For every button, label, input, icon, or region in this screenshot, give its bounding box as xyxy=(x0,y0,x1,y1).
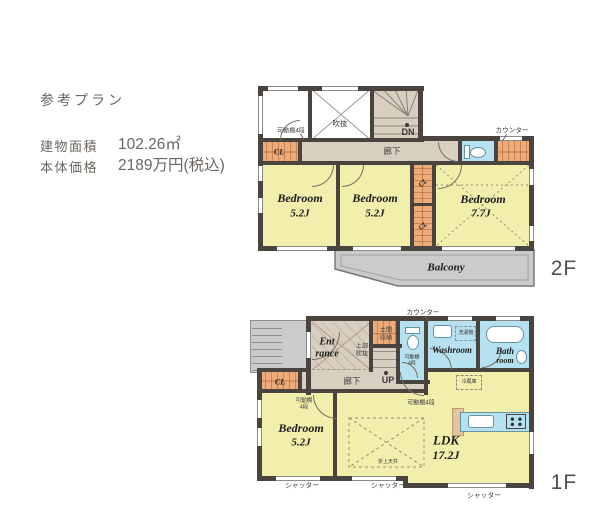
front-door-opening xyxy=(306,332,311,358)
floor1-label: 1F xyxy=(551,471,578,495)
bath-line2: room xyxy=(496,357,514,366)
floorplan-page: 参考プラン 建物面積 102.26㎡ 本体価格 2189万円(税込) xyxy=(0,0,600,516)
bath-line1: Bath xyxy=(496,346,514,356)
bedroom-shelf-line1: 可動棚 xyxy=(296,398,313,404)
window xyxy=(257,428,262,446)
wall xyxy=(257,368,262,481)
upper-void-line1: 上部 xyxy=(356,343,368,350)
porch-steps xyxy=(252,322,282,371)
bedroom-size: 5.2J xyxy=(291,437,310,450)
stairs-up-label: UP xyxy=(382,375,395,385)
fridge-label: 冷蔵庫 xyxy=(462,379,477,385)
window xyxy=(257,400,262,418)
closet-label: CL xyxy=(275,377,285,386)
shutter-label-2: シャッター xyxy=(371,482,405,490)
washbasin-icon xyxy=(433,325,452,338)
bathtub-icon xyxy=(486,326,524,343)
kitchen-sink-icon xyxy=(468,415,494,428)
bedroom-name: Bedroom xyxy=(278,422,323,436)
hallway-label: 廊下 xyxy=(343,377,360,387)
toilet-tank-icon xyxy=(405,327,420,334)
entrance-label-line2: rance xyxy=(315,348,338,360)
toilet-bowl-icon xyxy=(407,335,419,350)
wall xyxy=(298,368,302,393)
ceiling-note-label: 折上天井 xyxy=(378,459,398,465)
counter-note-label: カウンター xyxy=(406,309,439,317)
bath-stool-icon xyxy=(516,350,527,364)
bathroom-label: Bath room xyxy=(496,346,514,366)
wall xyxy=(529,316,534,489)
toilet-shelf-line2: 4段 xyxy=(405,360,420,366)
toilet-shelf-line1: 可動棚 xyxy=(405,354,420,360)
wall xyxy=(424,316,428,395)
upper-void-line2: 吹抜 xyxy=(356,350,368,357)
window xyxy=(448,316,472,321)
washroom-label: Washroom xyxy=(432,345,472,355)
wall xyxy=(257,368,310,372)
washer-label: 洗濯機 xyxy=(459,330,474,336)
window xyxy=(276,476,320,481)
window xyxy=(448,483,506,488)
wall xyxy=(257,389,428,393)
doma-line2: 収納 xyxy=(380,334,392,341)
ldk-shelf-label: 可動棚4段 xyxy=(407,400,435,407)
shutter-label-1: シャッター xyxy=(285,482,319,490)
toilet-shelf-label: 可動棚 4段 xyxy=(405,354,420,366)
bedroom-shelf-line2: 4段 xyxy=(296,404,313,410)
stove-icon xyxy=(506,414,526,429)
upper-void-label: 上部 吹抜 xyxy=(356,343,368,357)
doma-storage-label: 土間 収納 xyxy=(380,327,392,341)
bedroom-shelf-label: 可動棚 4段 xyxy=(296,398,313,411)
ldk-name: LDK xyxy=(433,434,459,449)
doma-line1: 土間 xyxy=(380,327,392,334)
entrance-label: Ent rance xyxy=(315,337,338,360)
floor-plan-1f: Ent rance 土間 収納 上部 吹抜 UP 廊下 可動棚 4段 カウンター… xyxy=(0,0,600,516)
window xyxy=(496,316,520,321)
entrance-label-line1: Ent xyxy=(315,337,338,349)
wall xyxy=(476,316,480,372)
ldk-size: 17.2J xyxy=(433,449,460,463)
shutter-label-3: シャッター xyxy=(467,492,501,500)
window xyxy=(529,432,534,454)
window xyxy=(352,476,396,481)
